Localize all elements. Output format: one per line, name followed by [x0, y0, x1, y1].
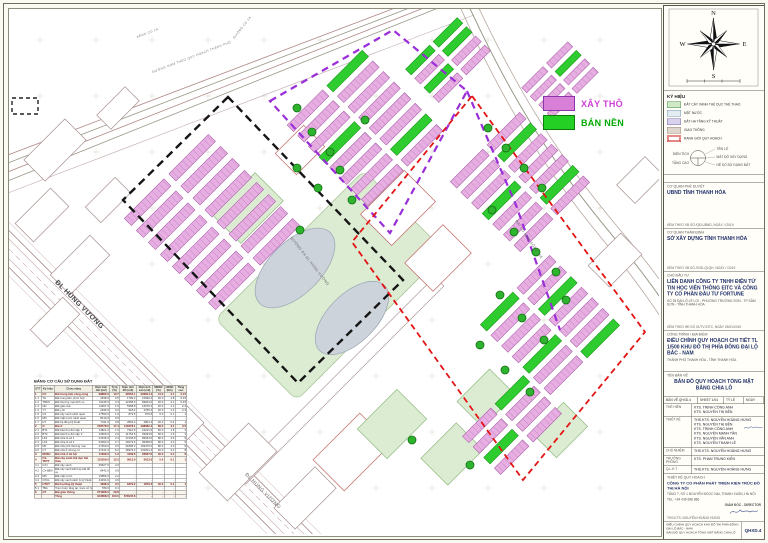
map-key-label: BÁN NỀN — [581, 118, 624, 128]
table-cell: CX-BĐX — [42, 467, 55, 474]
table-header-cell: Ký hiệu — [42, 385, 55, 392]
designer-signature — [743, 425, 763, 432]
table-cell: - — [153, 494, 164, 498]
tree-icon — [348, 196, 356, 204]
legend-swatch — [667, 110, 681, 117]
table-cell: - — [136, 467, 153, 474]
tree-icon — [336, 166, 344, 174]
lot-strip-xay-tho — [169, 134, 216, 181]
tree-icon — [326, 148, 334, 156]
legend-swatch — [667, 127, 681, 134]
spacer-box — [664, 175, 764, 183]
table-cell: 1 — [175, 456, 187, 463]
director-signature — [729, 507, 759, 516]
table-cell: - — [153, 467, 164, 474]
project-box: CÔNG TRÌNH / ĐỊA ĐIỂM ĐIỀU CHỈNH QUY HOẠ… — [664, 331, 764, 372]
footer-line1: ĐIỀU CHỈNH QUY HOẠCH KHU ĐÔ THỊ PHÍA ĐÔN… — [667, 523, 740, 531]
role-row: THỂ HIỆNKTS. TRỊNH CÔNG ANHKTS. NGUYỄN T… — [664, 404, 764, 417]
legend-label: GIAO THÔNG — [684, 129, 705, 133]
project-label: CÔNG TRÌNH / ĐỊA ĐIỂM — [667, 333, 761, 337]
meta-cell: TỶ LỆ — [724, 397, 744, 404]
lot-label-tang-cao: TẦNG CAO — [672, 161, 689, 165]
land-use-table-block: BẢNG CƠ CẤU SỬ DỤNG ĐẤT STTKý hiệuChức n… — [34, 379, 189, 505]
table-header-cell: HSSD (lần) — [164, 385, 175, 392]
lot-strip-xay-tho — [136, 191, 183, 238]
tree-icon — [466, 461, 474, 469]
meta-cell: SHEET 1/04 — [698, 397, 724, 404]
footer-drawing-code: QHXD.4 — [742, 522, 764, 539]
legend-item: GIAO THÔNG — [667, 127, 761, 134]
legend-label: RANH GIỚI QUY HOẠCH — [684, 137, 722, 141]
table-header-cell: MĐXD (%) — [153, 385, 164, 392]
role-label: THỂ HIỆN — [664, 404, 692, 416]
drawing-name: BẢN ĐỒ QUY HOẠCH TỔNG MẶT BẰNG CHIA LÔ — [667, 379, 761, 392]
table-cell: - — [164, 494, 175, 498]
investor-box: CHỦ ĐẦU TƯ LIÊN DANH CÔNG TY TNHH ĐIỆN T… — [664, 272, 764, 331]
role-label: TRƯỞNG PHÒNG — [664, 455, 692, 465]
role-label: CHỦ NHIỆM — [664, 447, 692, 455]
footer-line2: BẢN ĐỒ QUY HOẠCH TỔNG MẶT BẰNG CHIA LÔ — [667, 531, 740, 535]
table-cell: 0.1 — [164, 456, 175, 463]
green-open-block — [213, 173, 284, 244]
legend-swatch — [667, 136, 681, 143]
project-location: THÀNH PHỐ THANH HÓA - TỈNH THANH HÓA — [667, 358, 761, 362]
legend-item: ĐẤT HẠ TẦNG KỸ THUẬT — [667, 119, 761, 126]
contract-note: KÈM THEO HĐ SỐ 01/TV-EITC, NGÀY 25/01/20… — [667, 326, 762, 330]
table-cell: 112259.0 — [93, 456, 110, 463]
compass-box: N S W E — [664, 6, 764, 91]
tree-icon — [314, 184, 322, 192]
neighbor-block — [24, 119, 86, 181]
small-black-dashed-box — [12, 98, 38, 114]
tree-icon — [510, 228, 518, 236]
table-cell — [34, 494, 41, 498]
role-label: Q.L.K.T — [664, 466, 692, 474]
tree-icon — [293, 164, 301, 172]
lot-strip-xay-tho — [181, 146, 228, 193]
designer-box: THIẾT KẾ QUY HOẠCH CÔNG TY CỔ PHẦN PHÁT … — [664, 474, 764, 522]
table-row: Tổng913668.0100.0673045.6---- — [34, 494, 187, 498]
legend-label: ĐẤT CÂY XANH THỂ DỤC THỂ THAO — [684, 103, 740, 107]
table-cell: 12.3 — [110, 456, 120, 463]
tree-icon — [520, 164, 528, 172]
tree-icon — [488, 206, 496, 214]
drawing-label: TÊN BẢN VẼ — [667, 374, 761, 378]
lot-label-ten-lo: TÊN LÔ — [717, 146, 729, 151]
table-cell — [42, 494, 55, 498]
tree-icon — [562, 296, 570, 304]
meta-cell: NGÀY — [744, 397, 764, 404]
table-cell: Đất cây xanh cách ly kỹ thuật — [54, 478, 93, 482]
meta-grid: BẢN VẼ QHXD.4SHEET 1/04TỶ LỆNGÀY — [664, 397, 764, 404]
table-cell: 5613.0 — [136, 456, 153, 463]
legend-title: KÝ HIỆU — [667, 94, 761, 99]
plan-sheet: ĐL HÙNG VƯƠNGĐL HÙNG VƯƠNGĐƯỜNG RA ĐL HÙ… — [0, 0, 768, 543]
legend-label: ĐẤT HẠ TẦNG KỸ THUẬT — [684, 120, 723, 124]
table-cell: 913668.0 — [93, 494, 110, 498]
compass-w: W — [679, 41, 686, 48]
tree-icon — [476, 341, 484, 349]
tree-icon — [526, 388, 534, 396]
neighbor-block — [617, 157, 660, 204]
legend-swatch — [667, 102, 681, 109]
table-header-cell: STT — [34, 385, 41, 392]
map-key-swatch — [543, 96, 575, 111]
role-row: TRƯỞNG PHÒNGKTS. PHAN TRUNG KIÊN — [664, 455, 764, 466]
legend-item: MẶT NƯỚC — [667, 110, 761, 117]
map-key-item: XÂY THÔ — [543, 96, 643, 111]
tree-icon — [293, 104, 301, 112]
tree-icon — [501, 366, 509, 374]
table-header-cell: Diện tích XD (m2) — [120, 385, 137, 392]
review-box: CƠ QUAN THẨM ĐỊNH SỞ XÂY DỰNG TỈNH THANH… — [664, 229, 764, 272]
role-names: KTS. TRỊNH CÔNG ANHKTS. NGUYỄN THỊ BỀN — [692, 404, 764, 416]
table-cell: CX-TDTT — [42, 456, 55, 463]
map-key-label: XÂY THÔ — [581, 99, 623, 109]
table-header-cell: Diện tích sàn (m2) — [136, 385, 153, 392]
table-cell: Trạm bơm tăng áp, trạm xử lý — [54, 486, 93, 490]
table-cell: - — [175, 494, 187, 498]
designer-address: TẦNG 7, SỐ 1 NGUYỄN NGỌC NẠI, THANH XUÂN… — [667, 492, 761, 496]
table-cell: 4 — [34, 456, 41, 463]
approve-name: UBND TỈNH THANH HÓA — [667, 190, 761, 196]
table-cell: 8442.0 — [93, 467, 110, 474]
tree-icon — [296, 226, 304, 234]
table-cell: - — [120, 467, 137, 474]
role-names: THS.KTS. NGUYỄN HOÀNG HƯNG — [692, 466, 764, 474]
road-label: ĐƯỜNG CD 1A — [231, 14, 252, 39]
legend-swatch — [667, 119, 681, 126]
compass-s: S — [712, 73, 716, 80]
role-row: Q.L.K.TTHS.KTS. NGUYỄN HOÀNG HƯNG — [664, 466, 764, 474]
table-cell: Đất cây xanh thể dục thể thao — [54, 456, 93, 463]
panel-footer: ĐIỀU CHỈNH QUY HOẠCH KHU ĐÔ THỊ PHÍA ĐÔN… — [664, 522, 764, 539]
land-use-table: STTKý hiệuChức năngDiện tích đất (m2)Tỷ … — [34, 385, 187, 499]
housing-cluster — [406, 18, 491, 103]
role-label: THIẾT KẾ — [664, 417, 692, 447]
roles-rows: THỂ HIỆNKTS. TRỊNH CÔNG ANHKTS. NGUYỄN T… — [664, 404, 764, 474]
compass-n: N — [711, 10, 716, 17]
tree-icon — [502, 144, 510, 152]
table-cell: 5.0 — [153, 456, 164, 463]
lot-symbol: DIỆN TÍCH TẦNG CAO TÊN LÔ MẬT ĐỘ XÂY DỰN… — [667, 144, 760, 172]
role-row: CHỦ NHIỆMTHS.KTS. NGUYỄN HOÀNG HƯNG — [664, 447, 764, 455]
role-names: THS.KTS. NGUYỄN HOÀNG HƯNGKTS. NGUYỄN TH… — [692, 417, 764, 447]
lot-label-dien-tich: DIỆN TÍCH — [673, 151, 690, 156]
table-cell: 100.0 — [110, 494, 120, 498]
project-name: ĐIỀU CHỈNH QUY HOẠCH CHI TIẾT TL 1/500 K… — [667, 338, 761, 357]
meta-cell: BẢN VẼ QHXD.4 — [664, 397, 698, 404]
legend-item: ĐẤT CÂY XANH THỂ DỤC THỂ THAO — [667, 102, 761, 109]
table-header-cell: Tầng cao — [175, 385, 187, 392]
compass-e: E — [743, 41, 747, 48]
title-block-panel: N S W E KÝ HIỆU ĐẤT CÂY XA — [663, 5, 765, 540]
map-key-swatch — [543, 115, 575, 130]
approve-label: CƠ QUAN PHÊ DUYỆT — [667, 185, 761, 189]
table-cell: 4.2 — [34, 467, 41, 474]
lot-strip-xay-tho — [196, 251, 243, 298]
map-key-item: BÁN NỀN — [543, 115, 643, 130]
lot-strip-xay-tho — [148, 203, 195, 250]
table-header-cell: Chức năng — [54, 385, 93, 392]
table-cell: 673045.6 — [120, 494, 137, 498]
tree-icon — [361, 116, 369, 124]
lot-strip-xay-tho — [184, 239, 231, 286]
lot-strip-xay-tho — [124, 179, 171, 226]
table-row: 4CX-TDTTĐất cây xanh thể dục thể thao112… — [34, 456, 187, 463]
table-cell: - — [175, 467, 187, 474]
lot-label-mat-do: MẬT ĐỘ XÂY DỰNG — [717, 154, 748, 159]
table-cell: Tổng — [54, 494, 93, 498]
review-note: KÈM THEO VB SỐ /SXD-QLQH, NGÀY / /2019 — [667, 267, 762, 271]
tree-icon — [308, 128, 316, 136]
table-header-cell: Tỷ lệ (%) — [110, 385, 120, 392]
tree-icon — [540, 336, 548, 344]
road-label: ĐƯỜNG GOM THEO QUY HOẠCH THÀNH PHỐ — [151, 39, 231, 74]
designer-label: THIẾT KẾ QUY HOẠCH — [667, 476, 761, 480]
role-names: KTS. PHAN TRUNG KIÊN — [692, 455, 764, 465]
lot-label-he-so: HỆ SỐ SỬ DỤNG ĐẤT — [717, 162, 751, 167]
map-key-legend: XÂY THÔBÁN NỀN — [543, 96, 643, 134]
tree-icon — [496, 291, 504, 299]
table-row: 4.2CX-BĐXĐất cây xanh kết hợp bãi đỗ xe8… — [34, 467, 187, 474]
legend-label: MẶT NƯỚC — [684, 112, 702, 116]
table-cell: 5613.0 — [120, 456, 137, 463]
table-cell: - — [164, 467, 175, 474]
table-header-cell: Diện tích đất (m2) — [93, 385, 110, 392]
lot-strip-xay-tho — [172, 227, 219, 274]
land-use-table-title: BẢNG CƠ CẤU SỬ DỤNG ĐẤT — [34, 379, 189, 384]
designer-name: CÔNG TY CỔ PHẦN PHÁT TRIỂN KIẾN TRÚC ĐÔ … — [667, 481, 761, 491]
tree-icon — [518, 314, 526, 322]
tree-icon — [408, 436, 416, 444]
legend-item: RANH GIỚI QUY HOẠCH — [667, 136, 761, 143]
tree-icon — [552, 268, 560, 276]
compass-points — [687, 17, 741, 71]
role-names: THS.KTS. NGUYỄN HOÀNG HƯNG — [692, 447, 764, 455]
legend-items: ĐẤT CÂY XANH THỂ DỤC THỂ THAOMẶT NƯỚCĐẤT… — [667, 102, 761, 143]
role-row: THIẾT KẾTHS.KTS. NGUYỄN HOÀNG HƯNGKTS. N… — [664, 417, 764, 448]
review-label: CƠ QUAN THẨM ĐỊNH — [667, 231, 761, 235]
table-cell: 0.9 — [110, 467, 120, 474]
table-cell: Đất cây xanh kết hợp bãi đỗ xe — [54, 467, 93, 474]
investor-label: CHỦ ĐẦU TƯ — [667, 274, 761, 278]
lot-strip-xay-tho — [160, 215, 207, 262]
neighbor-block — [15, 188, 69, 242]
approve-box: CƠ QUAN PHÊ DUYỆT UBND TỈNH THANH HÓA KÈ… — [664, 183, 764, 229]
compass-rose: N S W E — [667, 8, 760, 88]
tree-icon — [484, 124, 492, 132]
legend-box: KÝ HIỆU ĐẤT CÂY XANH THỂ DỤC THỂ THAOMẶT… — [664, 91, 764, 175]
drawing-name-box: TÊN BẢN VẼ BẢN ĐỒ QUY HOẠCH TỔNG MẶT BẰN… — [664, 372, 764, 397]
table-cell: - — [136, 494, 153, 498]
table-cell: Đất trung tâm công cộng — [54, 392, 93, 396]
designer-tel: TEL: +84 436 688 886 — [667, 498, 761, 502]
investor-name: LIÊN DANH CÔNG TY TNHH ĐIỆN TỬ TIN HỌC V… — [667, 279, 761, 298]
investor-address: SỐ 25 ĐẠI LỘ LÊ LỢI - PHƯỜNG TRƯỜNG SƠN … — [667, 299, 761, 307]
director-name: THS.KTS. NGUYỄN HOÀNG HƯNG — [667, 516, 762, 520]
tree-icon — [538, 184, 546, 192]
road-label: KÊNH CD 1A — [136, 26, 160, 39]
review-name: SỞ XÂY DỰNG TỈNH THANH HÓA — [667, 236, 761, 242]
approve-note: KÈM THEO VB SỐ /QĐ-UBND, NGÀY / /2019 — [667, 224, 762, 228]
